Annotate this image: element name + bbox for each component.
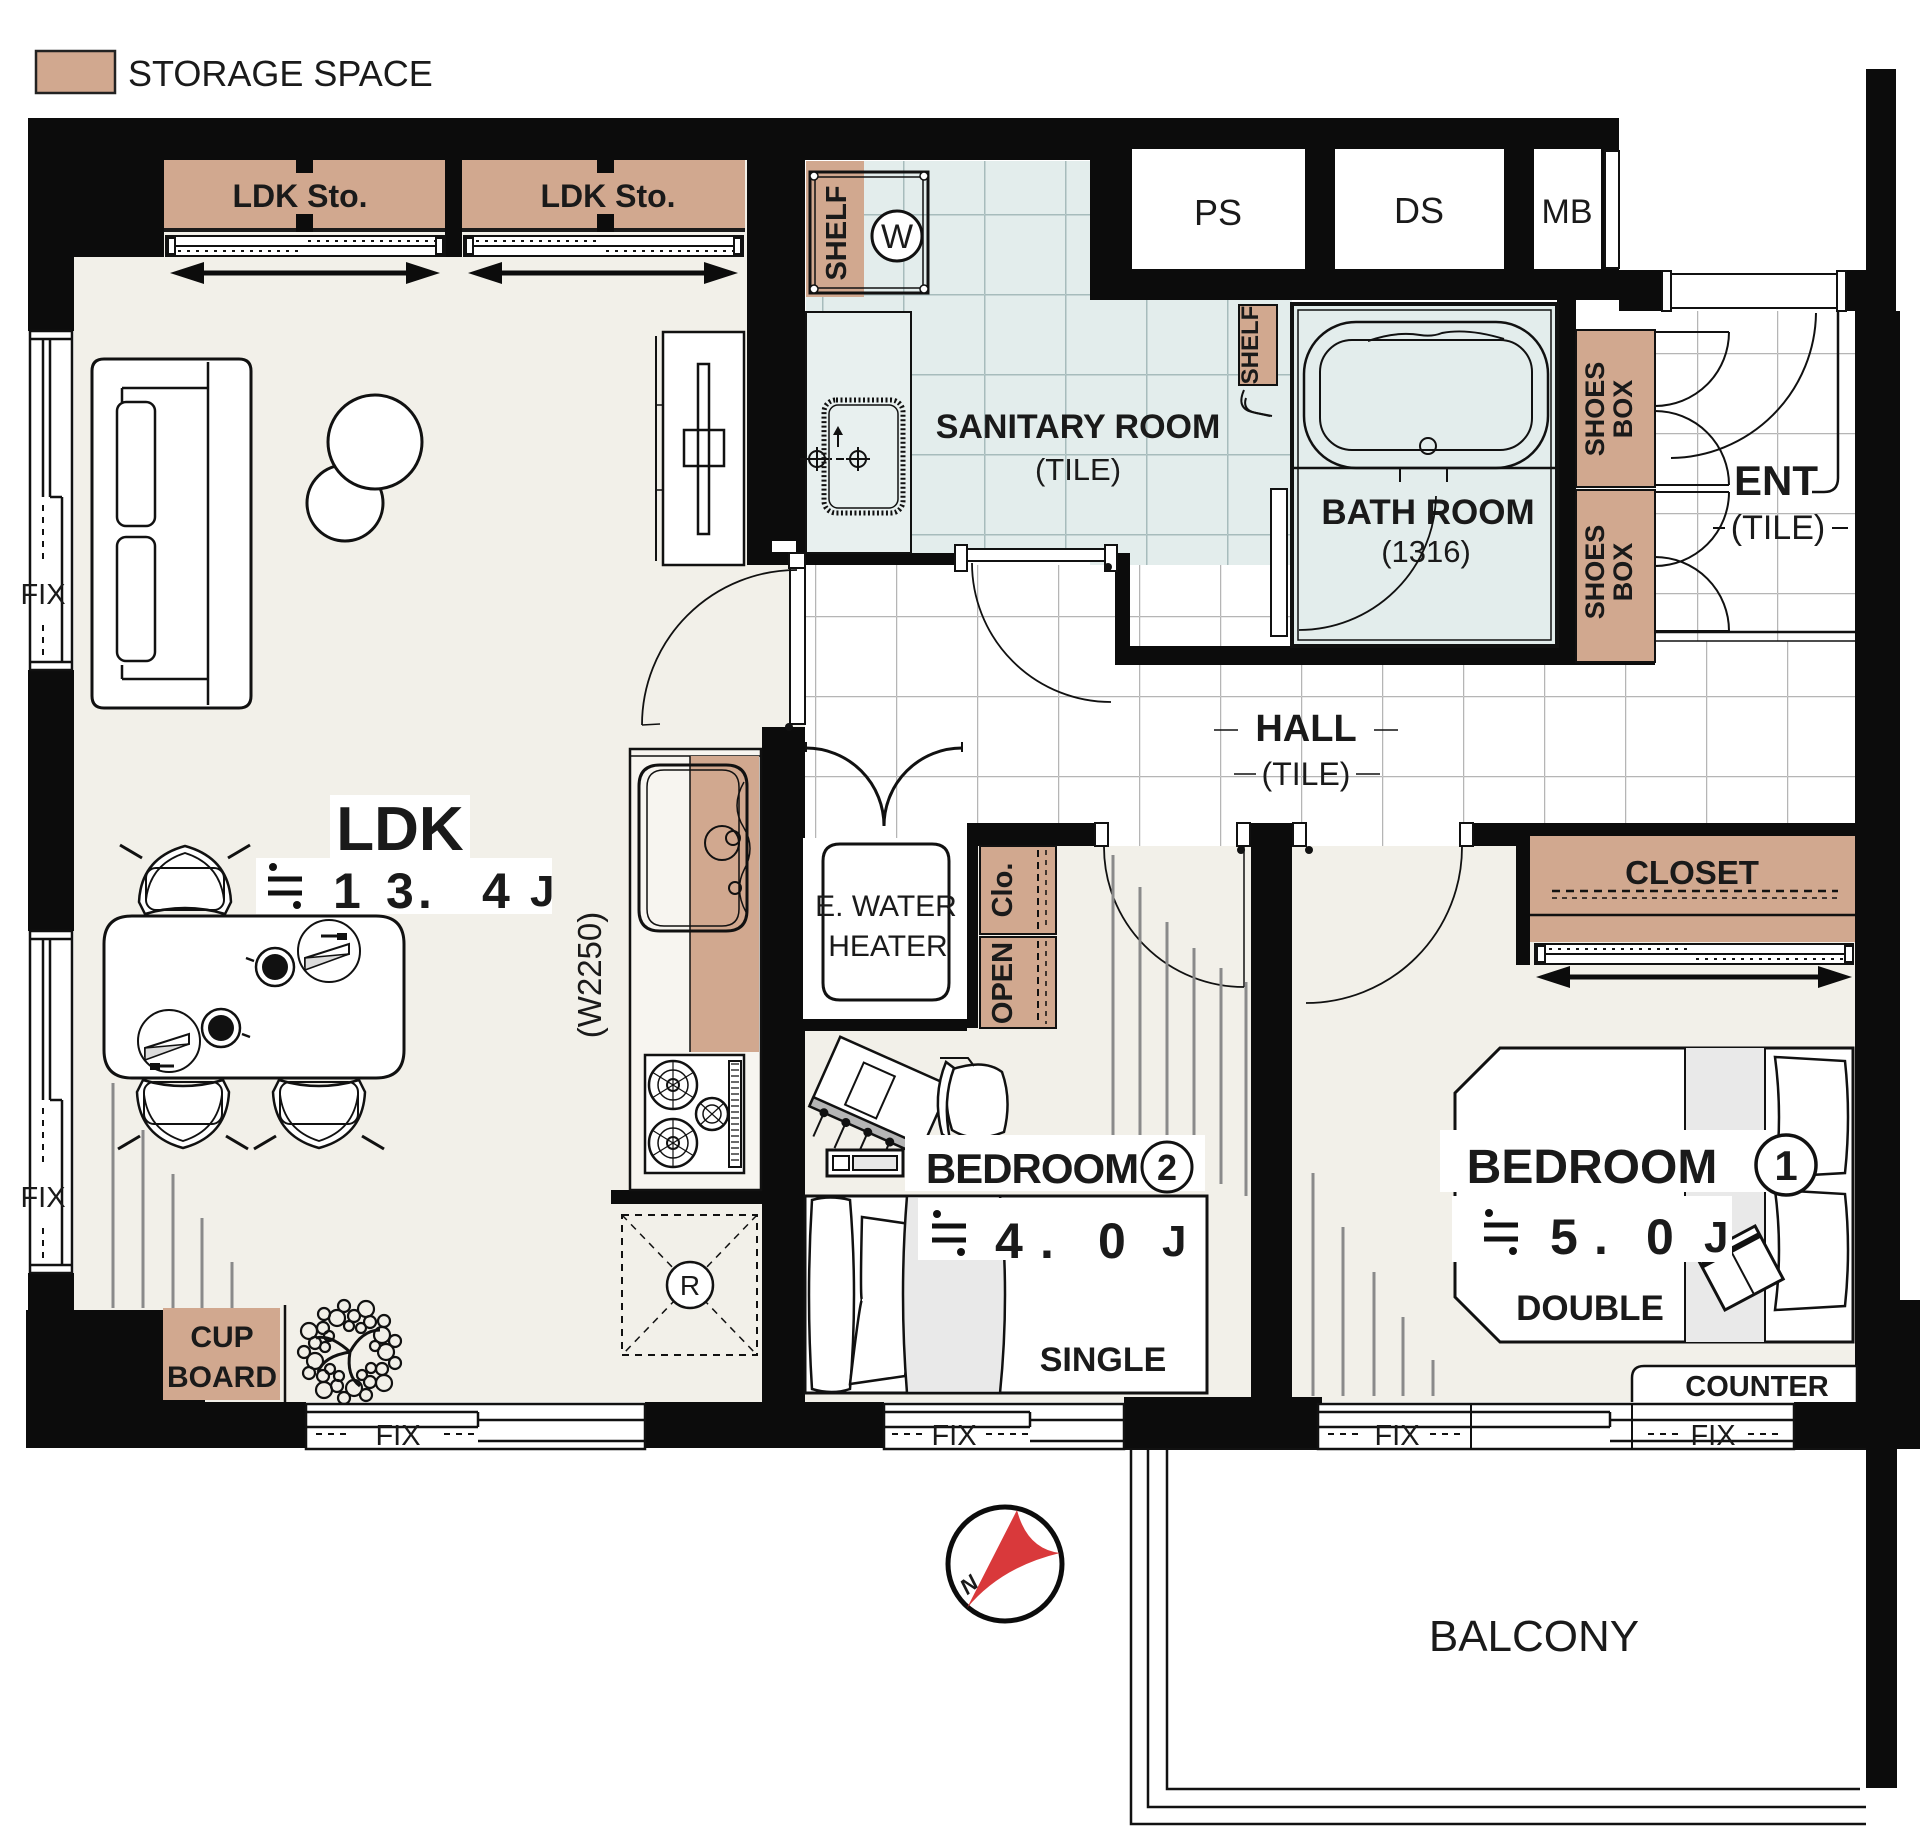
- svg-text:ENT: ENT: [1734, 457, 1818, 504]
- svg-text:SHOES: SHOES: [1580, 525, 1610, 620]
- svg-text:FIX: FIX: [1690, 1420, 1735, 1452]
- svg-text:J: J: [530, 867, 554, 916]
- svg-text:HEATER: HEATER: [828, 930, 947, 963]
- svg-text:BOX: BOX: [1608, 543, 1638, 602]
- svg-text:FIX: FIX: [20, 579, 65, 611]
- svg-text:(TILE): (TILE): [1731, 509, 1825, 547]
- svg-text:J: J: [1162, 1217, 1186, 1266]
- svg-text:STORAGE SPACE: STORAGE SPACE: [128, 53, 433, 94]
- svg-text:5: 5: [1550, 1209, 1578, 1265]
- svg-text:DOUBLE: DOUBLE: [1516, 1289, 1664, 1328]
- svg-text:.: .: [418, 863, 432, 919]
- svg-text:BOARD: BOARD: [167, 1361, 277, 1394]
- svg-text:(W2250): (W2250): [571, 912, 608, 1039]
- svg-text:.: .: [1040, 1213, 1054, 1269]
- svg-text:E. WATER: E. WATER: [815, 890, 957, 923]
- svg-text:BATH ROOM: BATH ROOM: [1321, 493, 1534, 532]
- svg-text:CLOSET: CLOSET: [1625, 854, 1759, 891]
- svg-text:SHOES: SHOES: [1580, 362, 1610, 457]
- svg-text:SANITARY ROOM: SANITARY ROOM: [936, 408, 1221, 446]
- svg-text:MB: MB: [1542, 193, 1593, 231]
- svg-text:HALL: HALL: [1255, 708, 1356, 750]
- svg-text:(TILE): (TILE): [1035, 452, 1121, 487]
- svg-text:SHELF: SHELF: [1237, 306, 1264, 385]
- svg-text:2: 2: [1157, 1147, 1177, 1188]
- svg-text:BEDROOM: BEDROOM: [1467, 1141, 1718, 1194]
- svg-text:4: 4: [995, 1213, 1023, 1269]
- svg-text:(1316): (1316): [1381, 534, 1471, 569]
- svg-text:COUNTER: COUNTER: [1685, 1371, 1828, 1403]
- svg-text:OPEN: OPEN: [987, 942, 1019, 1024]
- svg-text:LDK Sto.: LDK Sto.: [232, 178, 367, 214]
- svg-text:PS: PS: [1194, 192, 1242, 233]
- svg-text:3: 3: [386, 863, 414, 919]
- svg-text:.: .: [1594, 1209, 1608, 1265]
- svg-text:LDK: LDK: [336, 795, 464, 864]
- svg-text:FIX: FIX: [20, 1182, 65, 1214]
- svg-text:0: 0: [1646, 1209, 1674, 1265]
- svg-text:1: 1: [333, 863, 361, 919]
- svg-text:R: R: [680, 1270, 700, 1301]
- svg-text:BALCONY: BALCONY: [1429, 1612, 1639, 1661]
- svg-text:DS: DS: [1394, 190, 1444, 231]
- svg-text:0: 0: [1098, 1213, 1126, 1269]
- svg-text:FIX: FIX: [375, 1420, 420, 1452]
- svg-text:SHELF: SHELF: [821, 185, 853, 280]
- svg-text:LDK Sto.: LDK Sto.: [540, 178, 675, 214]
- svg-text:BOX: BOX: [1608, 380, 1638, 439]
- svg-text:4: 4: [482, 863, 510, 919]
- svg-text:W: W: [881, 218, 913, 256]
- svg-text:FIX: FIX: [931, 1420, 976, 1452]
- svg-text:Clo.: Clo.: [987, 863, 1019, 918]
- svg-text:1: 1: [1774, 1142, 1797, 1189]
- svg-text:BEDROOM: BEDROOM: [926, 1145, 1138, 1192]
- svg-text:SINGLE: SINGLE: [1040, 1341, 1167, 1379]
- svg-text:CUP: CUP: [190, 1321, 253, 1354]
- svg-text:(TILE): (TILE): [1262, 756, 1351, 792]
- svg-text:FIX: FIX: [1374, 1420, 1419, 1452]
- svg-text:J: J: [1704, 1213, 1728, 1262]
